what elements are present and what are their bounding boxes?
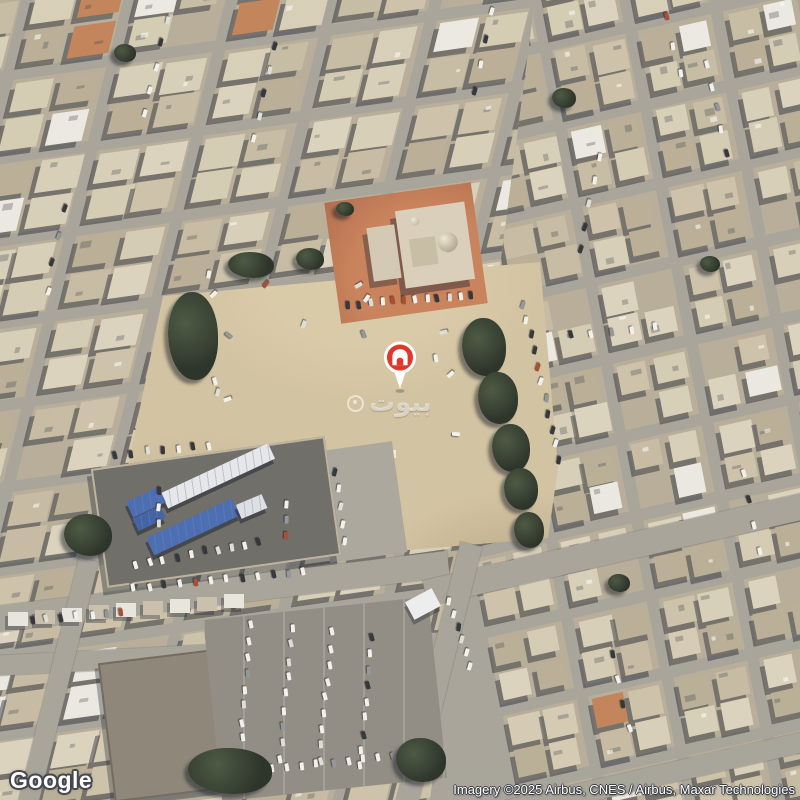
car bbox=[597, 153, 602, 161]
car bbox=[286, 672, 291, 680]
car bbox=[61, 204, 68, 212]
tree-canopy bbox=[64, 514, 112, 556]
tree-canopy bbox=[552, 88, 576, 108]
car bbox=[142, 108, 148, 116]
car bbox=[478, 60, 483, 68]
car bbox=[545, 410, 550, 418]
car bbox=[586, 199, 592, 207]
car bbox=[451, 610, 457, 618]
tree-canopy bbox=[188, 748, 272, 794]
car bbox=[704, 60, 710, 68]
car bbox=[210, 290, 218, 298]
car bbox=[300, 567, 306, 575]
tree-canopy bbox=[228, 252, 274, 278]
car bbox=[301, 320, 307, 328]
car bbox=[291, 624, 296, 632]
car bbox=[246, 637, 252, 645]
car bbox=[390, 297, 395, 305]
car bbox=[280, 738, 285, 746]
tree-canopy bbox=[504, 468, 538, 510]
car bbox=[340, 520, 346, 528]
car bbox=[224, 396, 232, 402]
car bbox=[328, 645, 334, 653]
car bbox=[389, 752, 395, 760]
car bbox=[592, 176, 597, 184]
car bbox=[225, 331, 233, 339]
car bbox=[272, 42, 278, 50]
car bbox=[670, 42, 675, 50]
car bbox=[245, 653, 251, 661]
car bbox=[319, 741, 324, 749]
tree-canopy bbox=[700, 256, 720, 272]
car bbox=[467, 662, 473, 670]
car bbox=[215, 388, 221, 396]
car bbox=[426, 294, 431, 302]
car bbox=[277, 755, 283, 763]
car bbox=[627, 724, 634, 732]
car bbox=[165, 16, 170, 24]
car bbox=[652, 322, 657, 330]
car bbox=[447, 370, 455, 378]
car bbox=[58, 614, 64, 622]
tree-canopy bbox=[396, 738, 446, 782]
car bbox=[523, 316, 528, 324]
car bbox=[629, 326, 635, 334]
car bbox=[177, 445, 182, 453]
car bbox=[321, 709, 326, 717]
car bbox=[745, 495, 751, 503]
car bbox=[715, 103, 721, 111]
car bbox=[146, 583, 152, 591]
car bbox=[158, 38, 164, 46]
car bbox=[549, 426, 555, 434]
car bbox=[240, 733, 245, 741]
car bbox=[538, 377, 544, 385]
car bbox=[331, 759, 337, 767]
car bbox=[581, 223, 587, 231]
car bbox=[49, 258, 55, 266]
car bbox=[241, 700, 246, 708]
car bbox=[556, 456, 561, 464]
car bbox=[709, 83, 715, 91]
tree-canopy bbox=[514, 512, 544, 548]
car bbox=[469, 291, 474, 299]
car bbox=[368, 298, 373, 306]
car bbox=[284, 763, 289, 771]
tree-canopy bbox=[296, 248, 324, 270]
car bbox=[724, 149, 730, 157]
car bbox=[448, 294, 452, 302]
car bbox=[240, 574, 246, 582]
car bbox=[242, 687, 247, 695]
car bbox=[267, 66, 273, 74]
car bbox=[177, 579, 183, 587]
car bbox=[280, 722, 285, 730]
car bbox=[238, 719, 244, 727]
car bbox=[161, 580, 166, 588]
car bbox=[412, 295, 418, 303]
car bbox=[255, 572, 261, 580]
tree-canopy bbox=[478, 372, 518, 424]
car bbox=[286, 658, 291, 666]
car bbox=[190, 442, 195, 450]
car bbox=[104, 610, 109, 618]
car bbox=[112, 451, 118, 459]
car bbox=[153, 63, 159, 71]
car bbox=[519, 301, 525, 309]
car bbox=[472, 86, 478, 94]
car bbox=[356, 301, 361, 309]
car bbox=[319, 725, 324, 733]
car bbox=[212, 377, 218, 385]
car bbox=[464, 648, 470, 656]
car bbox=[610, 650, 615, 658]
car bbox=[322, 692, 328, 700]
car bbox=[329, 627, 335, 635]
car bbox=[587, 330, 593, 338]
car bbox=[358, 746, 363, 754]
car bbox=[458, 292, 463, 300]
car bbox=[446, 597, 451, 605]
car bbox=[325, 678, 331, 686]
car bbox=[287, 639, 293, 647]
car bbox=[206, 270, 211, 278]
car bbox=[286, 570, 291, 578]
car bbox=[257, 112, 263, 120]
car bbox=[342, 537, 347, 545]
car bbox=[336, 484, 341, 492]
car bbox=[250, 134, 256, 142]
car bbox=[609, 328, 615, 336]
car bbox=[130, 583, 135, 591]
car bbox=[718, 125, 723, 133]
car bbox=[483, 35, 489, 43]
tree-canopy bbox=[336, 202, 354, 216]
car bbox=[73, 611, 79, 619]
property-marker[interactable] bbox=[383, 341, 417, 399]
car bbox=[327, 661, 332, 669]
car bbox=[375, 753, 381, 761]
bayut-logo-icon bbox=[347, 395, 364, 412]
car bbox=[362, 712, 367, 720]
car bbox=[678, 69, 683, 77]
car bbox=[567, 330, 573, 338]
car bbox=[380, 298, 385, 306]
car bbox=[332, 468, 338, 476]
car bbox=[147, 86, 153, 94]
car bbox=[262, 280, 270, 288]
car bbox=[261, 89, 267, 97]
car bbox=[208, 576, 213, 584]
car bbox=[281, 707, 286, 715]
car bbox=[458, 635, 464, 643]
car bbox=[544, 394, 549, 402]
car bbox=[434, 294, 440, 302]
tree-canopy bbox=[168, 292, 218, 380]
car bbox=[30, 616, 36, 624]
car bbox=[615, 675, 621, 683]
car bbox=[160, 446, 164, 454]
car bbox=[223, 574, 228, 582]
car bbox=[433, 354, 438, 362]
car bbox=[489, 6, 495, 14]
tree-canopy bbox=[462, 318, 506, 376]
car bbox=[664, 12, 670, 20]
car bbox=[361, 731, 367, 739]
car bbox=[529, 330, 535, 338]
car bbox=[118, 608, 123, 616]
car bbox=[402, 297, 406, 305]
car bbox=[345, 301, 349, 309]
imagery-attribution: Imagery ©2025 Airbus, CNES / Airbus, Max… bbox=[453, 782, 795, 797]
car bbox=[552, 439, 558, 447]
car bbox=[440, 329, 448, 335]
car bbox=[248, 620, 254, 628]
car bbox=[338, 502, 344, 510]
car bbox=[42, 614, 48, 622]
car bbox=[620, 700, 625, 708]
car bbox=[55, 232, 62, 240]
car bbox=[367, 649, 372, 657]
car bbox=[358, 761, 363, 769]
car bbox=[740, 469, 746, 477]
car bbox=[346, 757, 352, 765]
car bbox=[452, 432, 460, 437]
tree-canopy bbox=[492, 424, 530, 472]
car bbox=[193, 578, 198, 586]
car bbox=[364, 681, 370, 689]
car bbox=[456, 623, 461, 631]
tree-canopy bbox=[114, 44, 136, 62]
car bbox=[271, 570, 277, 578]
car bbox=[354, 281, 363, 288]
car bbox=[578, 245, 584, 253]
car bbox=[90, 611, 95, 619]
car bbox=[45, 287, 52, 295]
car bbox=[246, 669, 251, 677]
home-icon bbox=[383, 341, 417, 399]
tree-canopy bbox=[608, 574, 630, 592]
car bbox=[360, 330, 367, 338]
satellite-map-canvas[interactable]: بيوت Google Imagery ©2025 Airbus, CNES /… bbox=[0, 0, 800, 800]
car bbox=[145, 446, 150, 454]
car bbox=[532, 346, 538, 354]
car bbox=[128, 450, 133, 458]
google-logo[interactable]: Google bbox=[10, 767, 92, 794]
car bbox=[368, 633, 374, 641]
car bbox=[534, 363, 540, 371]
car bbox=[751, 520, 757, 528]
car bbox=[284, 688, 289, 696]
car bbox=[367, 666, 372, 674]
car bbox=[299, 762, 304, 770]
car bbox=[318, 757, 324, 765]
car bbox=[364, 698, 369, 706]
car bbox=[206, 442, 212, 450]
car bbox=[756, 546, 762, 554]
